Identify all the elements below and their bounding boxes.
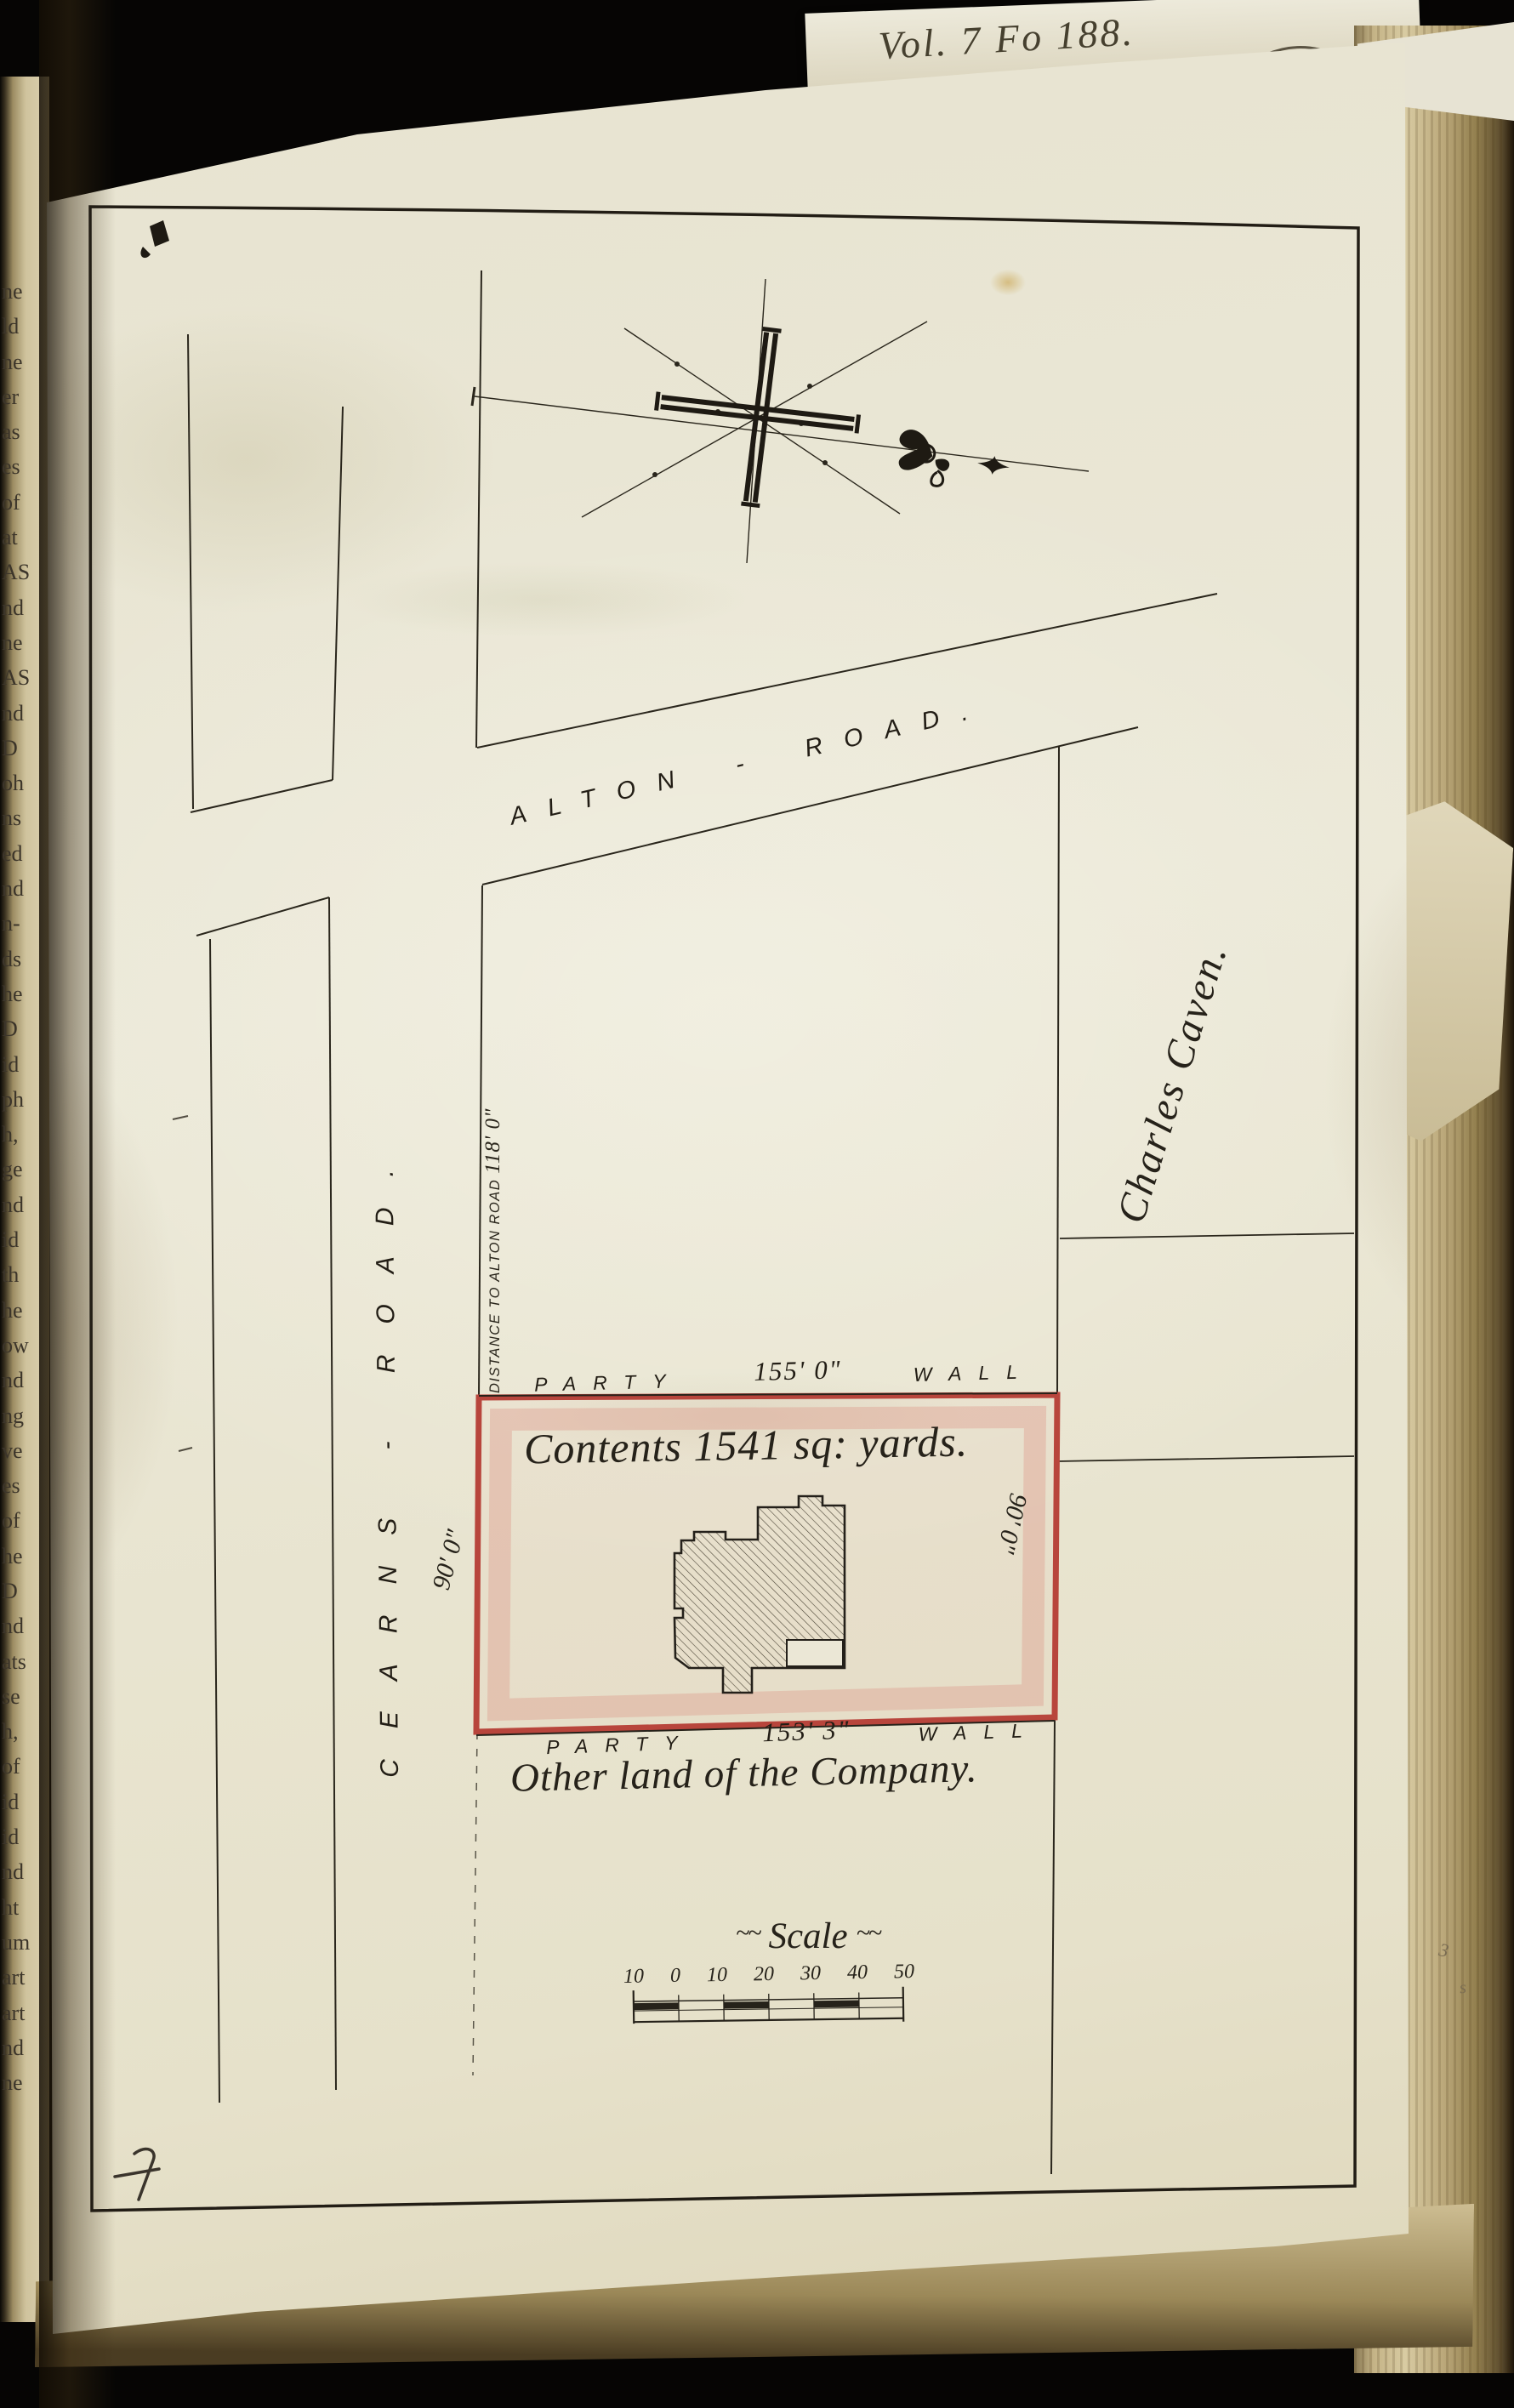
text-fragment: es	[2, 449, 44, 484]
facing-page-edge: neldneerasesofatASndneASndDohnsedndn-dsh…	[0, 77, 49, 2322]
text-fragment: h,	[2, 1117, 44, 1152]
text-fragment: id	[2, 1819, 44, 1854]
wall-word: WALL	[913, 1360, 1034, 1386]
text-fragment: ht	[2, 1890, 44, 1925]
text-fragment: of	[2, 485, 44, 520]
text-fragment: D	[2, 1574, 44, 1608]
text-fragment: ns	[2, 800, 44, 835]
scale-tick-label: 10	[707, 1964, 727, 1987]
text-fragment: ng	[2, 1398, 44, 1433]
text-fragment: D	[2, 1011, 44, 1046]
scale-tick-label: 30	[800, 1962, 821, 1985]
text-fragment: ne	[2, 344, 44, 379]
text-fragment: at	[2, 520, 44, 555]
text-fragment: as	[2, 414, 44, 449]
text-fragment: id	[2, 1785, 44, 1819]
scale-tick-label: 50	[894, 1961, 914, 1984]
text-fragment: er	[2, 379, 44, 414]
text-fragment: h,	[2, 1714, 44, 1749]
text-fragment: ge	[2, 1152, 44, 1187]
text-fragment: he	[2, 976, 44, 1011]
text-fragment: id	[2, 1222, 44, 1257]
scale-flourish-right: ~~	[848, 1919, 889, 1947]
facing-page-text-fragments: neldneerasesofatASndneASndDohnsedndn-dsh…	[0, 274, 44, 2100]
text-fragment: art	[2, 1995, 44, 2030]
book-scan: neldneerasesofatASndneASndDohnsedndn-dsh…	[0, 0, 1514, 2408]
distance-to-alton-label: DISTANCE TO ALTON ROAD 118' 0"	[481, 968, 505, 1393]
text-fragment: oh	[2, 766, 44, 800]
text-fragment: ats	[2, 1644, 44, 1679]
text-fragment: ow	[2, 1328, 44, 1363]
text-fragment: id	[2, 1047, 44, 1082]
text-fragment: nd	[2, 590, 44, 625]
text-fragment: se	[2, 1679, 44, 1714]
text-fragment: of	[2, 1749, 44, 1784]
other-land-label: Other land of the Company.	[509, 1745, 978, 1801]
text-fragment: ld	[2, 309, 44, 344]
text-fragment: nd	[2, 1854, 44, 1889]
text-fragment: D	[2, 731, 44, 766]
text-fragment: ne	[2, 2065, 44, 2100]
text-fragment: of	[2, 1503, 44, 1538]
text-fragment: n-	[2, 906, 44, 941]
text-fragment: nd	[2, 1363, 44, 1398]
plan-page	[0, 0, 1514, 2408]
parcel-contents-label: Contents 1541 sq: yards.	[524, 1416, 969, 1473]
handwritten-folio-note: Vol. 7 Fo 188.	[877, 9, 1135, 68]
text-fragment: AS	[2, 555, 44, 589]
text-fragment: ne	[2, 274, 44, 309]
text-fragment: he	[2, 1293, 44, 1328]
text-fragment: art	[2, 1960, 44, 1995]
text-fragment: ed	[2, 836, 44, 871]
scale-tick-label: 40	[847, 1961, 868, 1984]
party-word: PARTY	[534, 1369, 683, 1397]
distance-text: DISTANCE TO ALTON ROAD	[487, 1174, 503, 1393]
text-fragment: nd	[2, 696, 44, 731]
distance-value: 118' 0"	[481, 1108, 504, 1174]
text-fragment: AS	[2, 660, 44, 695]
wall-word: WALL	[918, 1719, 1039, 1746]
text-fragment: nd	[2, 2030, 44, 2065]
text-fragment: um	[2, 1925, 44, 1960]
scale-tick-label: 10	[623, 1966, 644, 1989]
text-fragment: ds	[2, 942, 44, 976]
scale-tick-label: 0	[670, 1965, 680, 1988]
text-fragment: ve	[2, 1433, 44, 1468]
text-fragment: nd	[2, 1187, 44, 1222]
scale-word: Scale	[768, 1916, 847, 1956]
text-fragment: ph	[2, 1082, 44, 1117]
scale-flourish-left: ~~	[727, 1919, 768, 1947]
text-fragment: he	[2, 1539, 44, 1574]
scale-tick-label: 20	[754, 1963, 774, 1986]
text-fragment: nd	[2, 871, 44, 906]
scale-title: ~~Scale~~	[655, 1916, 961, 1957]
party-bottom-dimension: 153' 3"	[762, 1715, 851, 1749]
party-top-dimension: 155' 0"	[754, 1354, 842, 1387]
text-fragment: th	[2, 1257, 44, 1292]
text-fragment: ne	[2, 625, 44, 660]
text-fragment: es	[2, 1468, 44, 1503]
text-fragment: nd	[2, 1608, 44, 1643]
